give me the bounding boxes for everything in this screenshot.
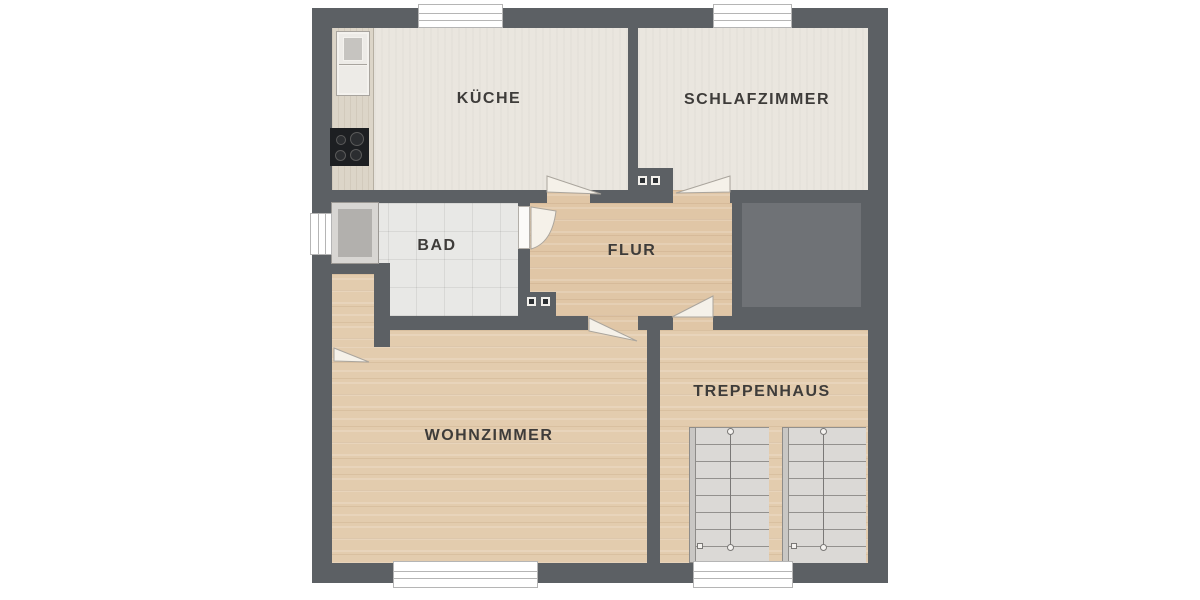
floor-plan: KÜCHE SCHLAFZIMMER BAD FLUR WOHNZIMMER T… xyxy=(0,0,1200,600)
room-label-kueche: KÜCHE xyxy=(457,91,521,107)
door-swings xyxy=(0,0,1200,600)
door-treppenhaus xyxy=(672,296,713,317)
room-label-schlafzimmer: SCHLAFZIMMER xyxy=(684,92,830,108)
door-bad-swing xyxy=(531,207,556,249)
room-label-flur: FLUR xyxy=(608,243,657,259)
door-niche xyxy=(334,348,369,362)
door-wohnzimmer xyxy=(589,318,637,341)
room-label-bad: BAD xyxy=(417,238,456,254)
room-label-treppenhaus: TREPPENHAUS xyxy=(693,384,830,400)
room-label-wohnzimmer: WOHNZIMMER xyxy=(425,428,554,444)
door-schlafzimmer xyxy=(676,176,730,193)
door-kueche xyxy=(547,176,601,194)
